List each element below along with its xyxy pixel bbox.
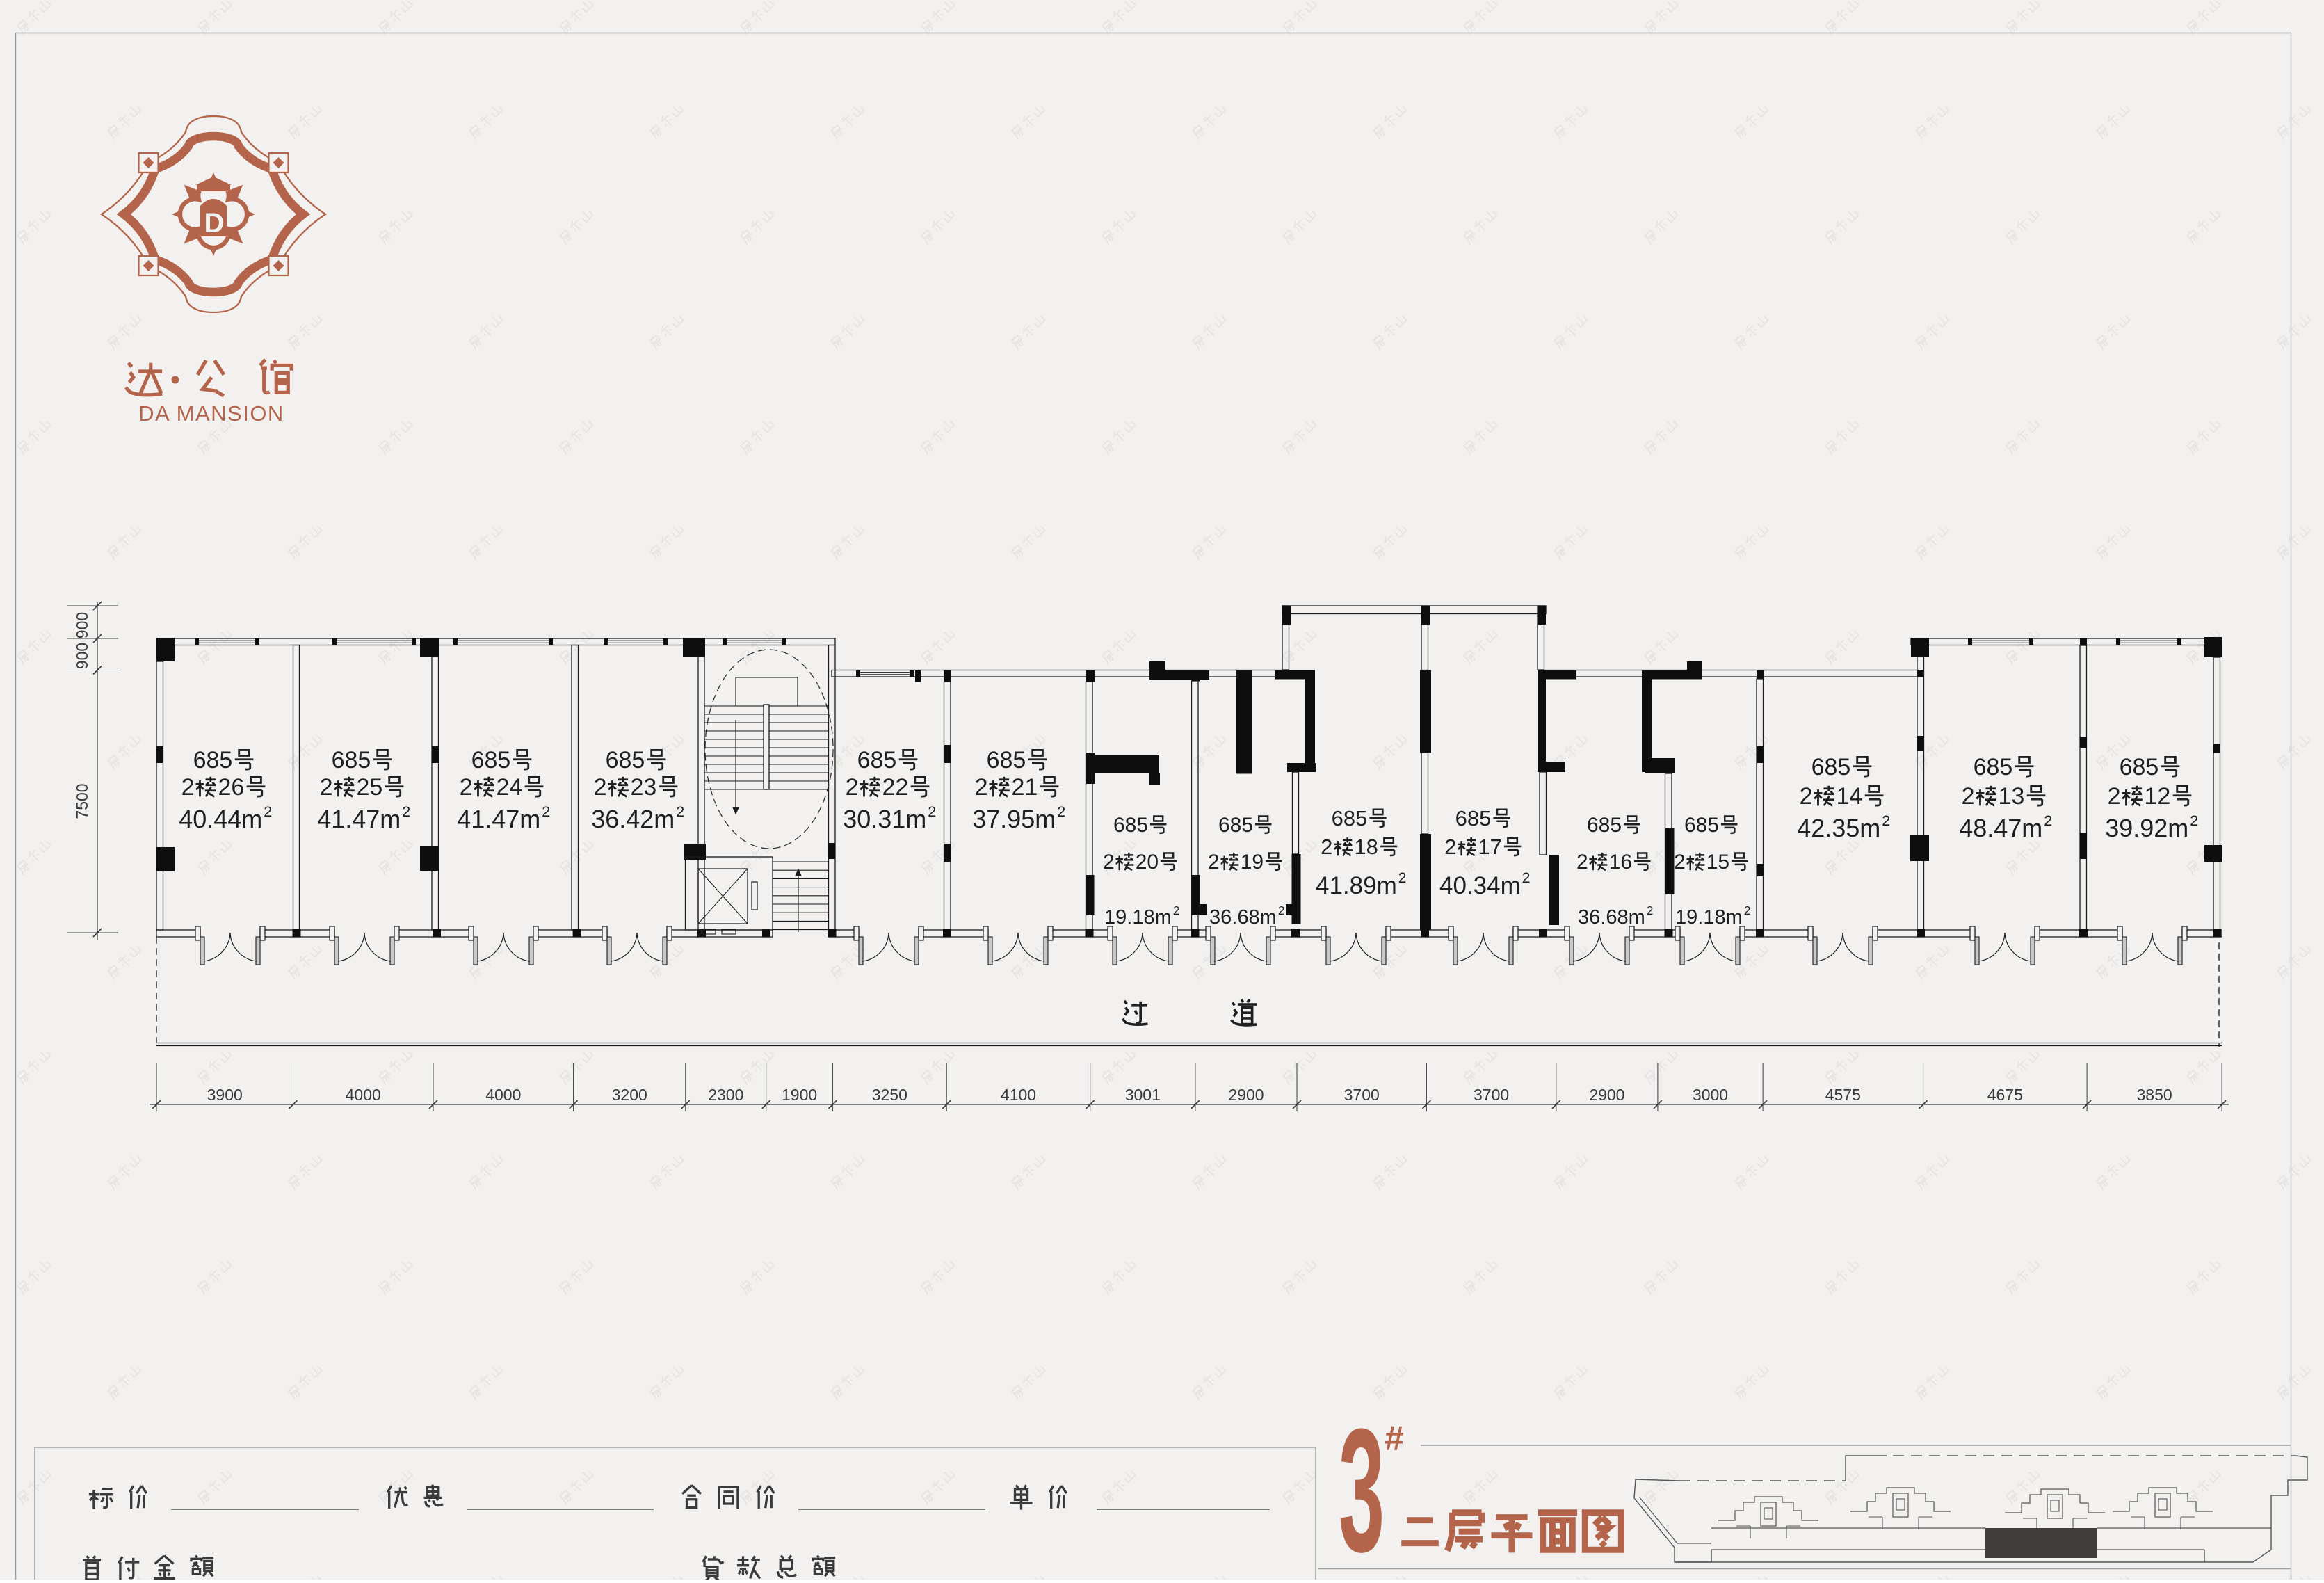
svg-text:17: 17	[1478, 835, 1501, 859]
svg-text:4675: 4675	[1987, 1086, 2023, 1104]
svg-text:685: 685	[1455, 806, 1492, 830]
svg-text:3200: 3200	[612, 1086, 647, 1104]
svg-text:2: 2	[320, 774, 333, 801]
svg-text:2: 2	[542, 803, 550, 820]
svg-text:20: 20	[1136, 851, 1159, 874]
svg-text:685: 685	[1113, 814, 1148, 837]
svg-text:2: 2	[975, 774, 988, 801]
svg-text:37.95m: 37.95m	[972, 805, 1056, 833]
svg-text:D: D	[204, 208, 225, 239]
svg-text:2: 2	[181, 774, 195, 801]
svg-text:2: 2	[1444, 835, 1456, 859]
svg-text:2: 2	[1674, 851, 1686, 874]
svg-text:25: 25	[357, 774, 383, 801]
svg-text:2: 2	[1800, 783, 1813, 810]
svg-text:2: 2	[1882, 812, 1890, 829]
svg-text:19.18m: 19.18m	[1104, 906, 1172, 929]
svg-text:2: 2	[1522, 870, 1531, 886]
svg-text:16: 16	[1609, 851, 1632, 874]
svg-text:900: 900	[73, 643, 91, 669]
svg-text:12: 12	[2145, 783, 2171, 810]
svg-text:41.89m: 41.89m	[1316, 872, 1397, 899]
svg-text:36.68m: 36.68m	[1209, 906, 1277, 929]
svg-text:685: 685	[1974, 754, 2013, 780]
svg-text:2: 2	[1173, 903, 1180, 917]
svg-text:3700: 3700	[1344, 1086, 1380, 1104]
svg-text:685: 685	[1811, 754, 1851, 780]
svg-text:685: 685	[193, 747, 233, 773]
svg-text:3700: 3700	[1474, 1086, 1509, 1104]
svg-text:42.35m: 42.35m	[1797, 814, 1880, 842]
svg-text:21: 21	[1012, 774, 1038, 801]
svg-text:1900: 1900	[782, 1086, 817, 1104]
svg-text:2: 2	[1398, 870, 1407, 886]
svg-text:13: 13	[1999, 783, 2025, 810]
svg-text:22: 22	[882, 774, 909, 801]
svg-text:3: 3	[1339, 1392, 1385, 1580]
svg-text:2: 2	[264, 803, 272, 820]
svg-text:900: 900	[73, 612, 91, 638]
svg-text:2: 2	[1576, 851, 1588, 874]
svg-text:4000: 4000	[346, 1086, 381, 1104]
svg-text:48.47m: 48.47m	[1959, 814, 2042, 842]
svg-text:30.31m: 30.31m	[843, 805, 926, 833]
svg-text:2: 2	[1647, 903, 1654, 917]
svg-text:685: 685	[606, 747, 645, 773]
svg-text:2: 2	[1321, 835, 1332, 859]
svg-text:2: 2	[594, 774, 607, 801]
svg-text:2: 2	[928, 803, 936, 820]
svg-text:3850: 3850	[2137, 1086, 2172, 1104]
svg-text:4575: 4575	[1825, 1086, 1861, 1104]
svg-text:4100: 4100	[1001, 1086, 1036, 1104]
svg-text:2: 2	[402, 803, 410, 820]
svg-text:3250: 3250	[872, 1086, 907, 1104]
svg-text:685: 685	[1332, 806, 1368, 830]
svg-text:685: 685	[857, 747, 897, 773]
svg-text:2: 2	[1278, 903, 1285, 917]
svg-text:2: 2	[676, 803, 684, 820]
svg-text:3000: 3000	[1693, 1086, 1728, 1104]
svg-text:685: 685	[987, 747, 1026, 773]
svg-text:26: 26	[218, 774, 245, 801]
svg-text:2: 2	[1057, 803, 1065, 820]
svg-text:18: 18	[1354, 835, 1378, 859]
svg-text:19.18m: 19.18m	[1675, 906, 1743, 929]
svg-text:40.44m: 40.44m	[179, 805, 262, 833]
svg-text:685: 685	[471, 747, 511, 773]
svg-text:#: #	[1385, 1419, 1404, 1458]
svg-text:2: 2	[1962, 783, 1975, 810]
svg-text:2: 2	[846, 774, 859, 801]
svg-text:3001: 3001	[1125, 1086, 1161, 1104]
svg-text:2300: 2300	[708, 1086, 743, 1104]
svg-text:14: 14	[1837, 783, 1863, 810]
svg-text:40.34m: 40.34m	[1439, 872, 1521, 899]
svg-text:2: 2	[2190, 812, 2198, 829]
svg-text:2: 2	[2108, 783, 2121, 810]
svg-text:3900: 3900	[207, 1086, 243, 1104]
svg-text:685: 685	[1218, 814, 1253, 837]
svg-text:2900: 2900	[1228, 1086, 1264, 1104]
svg-text:2: 2	[2044, 812, 2052, 829]
svg-text:685: 685	[1587, 814, 1622, 837]
svg-text:15: 15	[1706, 851, 1729, 874]
svg-text:36.68m: 36.68m	[1578, 906, 1645, 929]
svg-text:39.92m: 39.92m	[2105, 814, 2188, 842]
svg-text:685: 685	[2120, 754, 2159, 780]
svg-text:7500: 7500	[73, 783, 91, 819]
svg-text:4000: 4000	[485, 1086, 521, 1104]
svg-text:23: 23	[631, 774, 657, 801]
svg-text:24: 24	[497, 774, 523, 801]
svg-text:19: 19	[1241, 851, 1264, 874]
svg-text:2: 2	[1208, 851, 1220, 874]
svg-text:41.47m: 41.47m	[317, 805, 401, 833]
svg-text:36.42m: 36.42m	[591, 805, 675, 833]
svg-text:685: 685	[332, 747, 371, 773]
svg-text:41.47m: 41.47m	[457, 805, 540, 833]
svg-text:2: 2	[460, 774, 473, 801]
svg-text:DA MANSION: DA MANSION	[138, 401, 284, 426]
svg-text:2900: 2900	[1589, 1086, 1624, 1104]
svg-text:2: 2	[1744, 903, 1751, 917]
svg-text:685: 685	[1684, 814, 1719, 837]
svg-text:2: 2	[1103, 851, 1115, 874]
